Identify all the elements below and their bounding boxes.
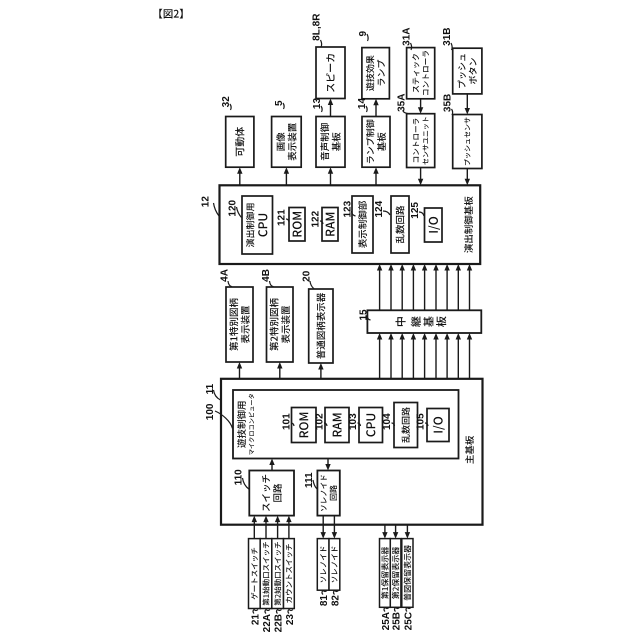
svg-text:22A: 22A	[262, 614, 273, 632]
svg-text:125: 125	[410, 202, 421, 219]
svg-text:20: 20	[301, 270, 312, 282]
svg-text:100: 100	[205, 403, 216, 420]
svg-text:25B: 25B	[392, 612, 403, 630]
svg-text:12: 12	[201, 196, 212, 208]
svg-text:25C: 25C	[403, 612, 414, 630]
svg-text:104: 104	[382, 413, 393, 430]
svg-text:4B: 4B	[261, 269, 272, 282]
svg-text:23: 23	[285, 614, 296, 626]
svg-text:82: 82	[330, 595, 341, 607]
svg-text:101: 101	[282, 413, 293, 430]
svg-text:121: 121	[277, 209, 288, 226]
svg-text:122: 122	[311, 210, 322, 227]
svg-text:8L,8R: 8L,8R	[312, 13, 323, 41]
svg-text:21: 21	[250, 614, 261, 626]
svg-text:22B: 22B	[274, 614, 285, 632]
svg-text:124: 124	[374, 200, 385, 217]
svg-text:25A: 25A	[381, 612, 392, 630]
svg-text:123: 123	[343, 200, 354, 217]
svg-text:110: 110	[233, 469, 244, 486]
svg-text:81: 81	[319, 595, 330, 607]
svg-text:4A: 4A	[219, 269, 230, 282]
svg-text:35A: 35A	[397, 94, 408, 112]
svg-text:105: 105	[416, 413, 427, 430]
svg-text:102: 102	[315, 413, 326, 430]
svg-text:103: 103	[348, 413, 359, 430]
